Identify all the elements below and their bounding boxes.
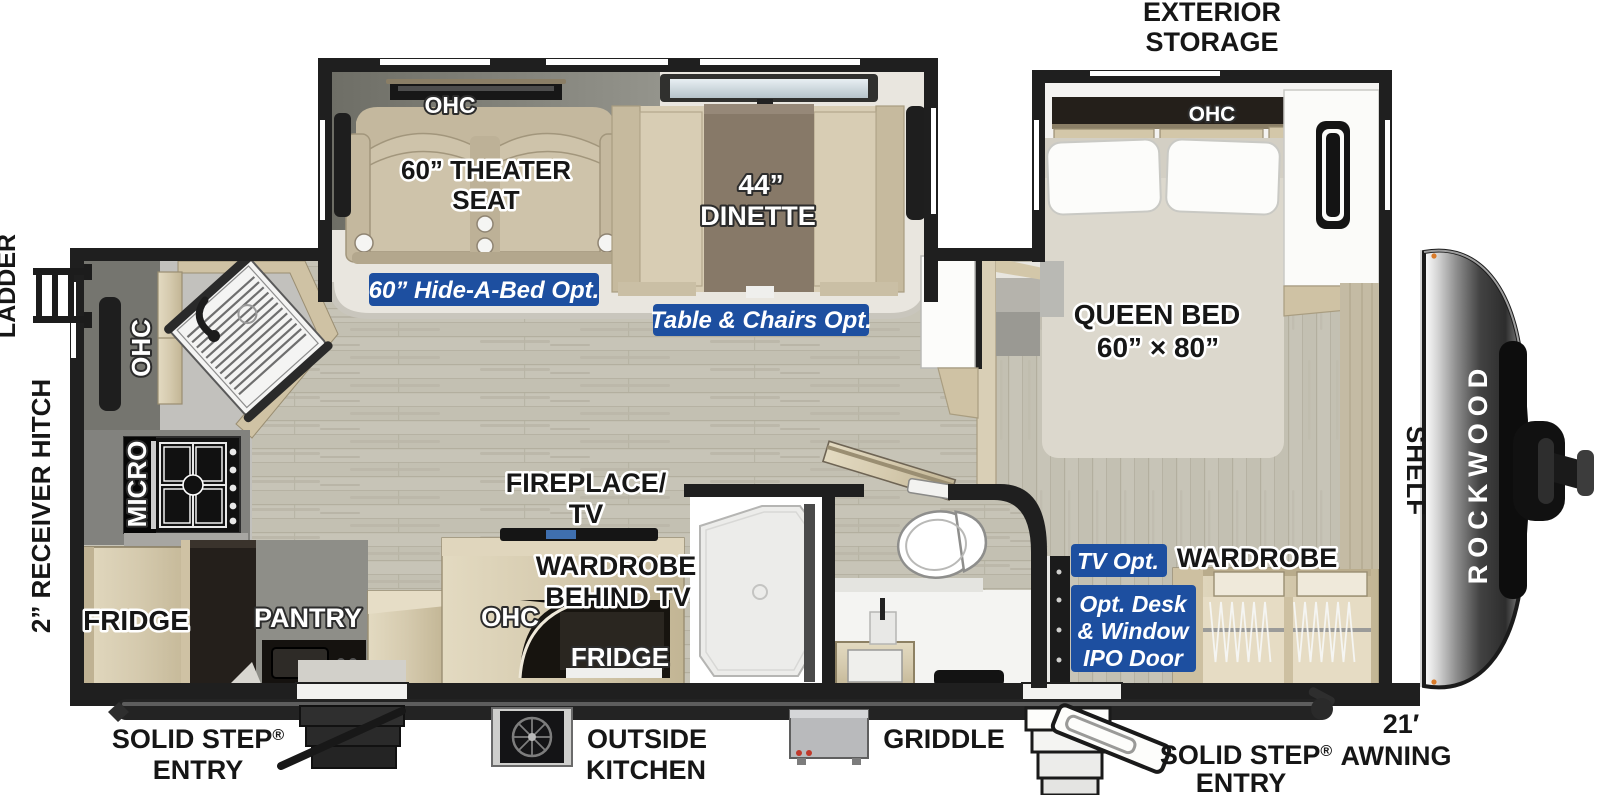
svg-text:WARDROBE: WARDROBE xyxy=(1177,543,1338,573)
svg-text:DINETTE: DINETTE xyxy=(700,201,816,231)
svg-text:60” THEATER: 60” THEATER xyxy=(401,155,571,185)
svg-text:AWNING: AWNING xyxy=(1341,741,1452,771)
svg-text:& Window: & Window xyxy=(1078,618,1191,644)
svg-text:KITCHEN: KITCHEN xyxy=(586,755,706,785)
svg-text:WARDROBE: WARDROBE xyxy=(536,551,697,581)
svg-text:LADDER: LADDER xyxy=(0,234,21,338)
svg-text:OHC: OHC xyxy=(424,92,475,118)
svg-text:TV: TV xyxy=(569,499,604,529)
svg-text:OHC: OHC xyxy=(1189,103,1236,126)
svg-text:SOLID STEP®: SOLID STEP® xyxy=(1160,740,1333,770)
svg-text:EXTERIOR: EXTERIOR xyxy=(1143,0,1281,27)
svg-text:GRIDDLE: GRIDDLE xyxy=(883,724,1005,754)
svg-text:FRIDGE: FRIDGE xyxy=(571,642,669,672)
svg-text:PANTRY: PANTRY xyxy=(254,603,362,633)
svg-text:SOLID STEP®: SOLID STEP® xyxy=(112,724,285,754)
svg-text:OUTSIDE: OUTSIDE xyxy=(587,724,707,754)
svg-text:60” × 80”: 60” × 80” xyxy=(1097,332,1219,363)
svg-text:2” RECEIVER HITCH: 2” RECEIVER HITCH xyxy=(26,379,56,633)
svg-text:21′: 21′ xyxy=(1383,709,1420,739)
svg-text:44”: 44” xyxy=(738,169,783,200)
svg-text:ENTRY: ENTRY xyxy=(153,755,244,785)
svg-text:FIREPLACE/: FIREPLACE/ xyxy=(506,468,667,498)
svg-text:QUEEN BED: QUEEN BED xyxy=(1074,299,1240,330)
svg-text:STORAGE: STORAGE xyxy=(1145,27,1278,57)
svg-text:TV Opt.: TV Opt. xyxy=(1077,548,1159,574)
svg-text:ENTRY: ENTRY xyxy=(1196,768,1287,795)
svg-text:ROCKWOOD: ROCKWOOD xyxy=(1463,362,1493,584)
svg-text:BEHIND TV: BEHIND TV xyxy=(545,582,691,612)
svg-text:60” Hide-A-Bed Opt.: 60” Hide-A-Bed Opt. xyxy=(369,277,600,304)
svg-text:OHC: OHC xyxy=(126,319,156,377)
svg-text:SHELF: SHELF xyxy=(1401,426,1431,516)
svg-text:MICRO: MICRO xyxy=(122,441,152,528)
svg-text:Opt. Desk: Opt. Desk xyxy=(1079,591,1188,617)
svg-text:IPO Door: IPO Door xyxy=(1083,645,1184,671)
svg-text:SEAT: SEAT xyxy=(452,185,520,215)
svg-text:Table & Chairs Opt.: Table & Chairs Opt. xyxy=(650,307,872,334)
svg-text:OHC: OHC xyxy=(481,602,539,632)
svg-text:FRIDGE: FRIDGE xyxy=(83,605,189,636)
